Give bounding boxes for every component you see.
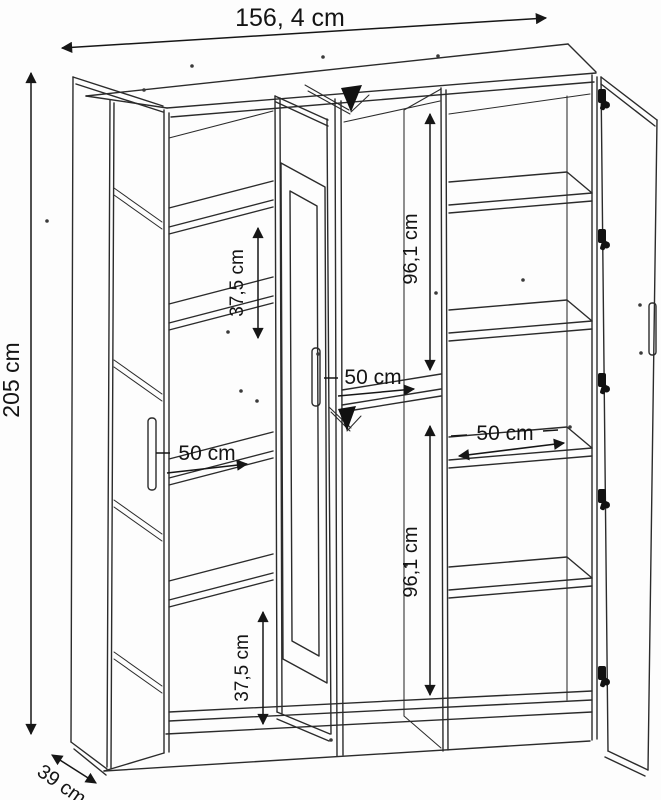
dim-shelf-gap-top-left-label: 37,5 cm xyxy=(227,249,248,317)
wardrobe-drawing xyxy=(45,44,657,776)
dim-shelf-width-left-label: 50 cm xyxy=(178,442,235,465)
hanging-rail-bracket-top xyxy=(305,85,369,114)
dim-shelf-width-right-label: 50 cm xyxy=(476,422,533,445)
left-door xyxy=(71,77,163,775)
mirror-frame-inner xyxy=(290,191,319,656)
dim-shelf-gap-bottom-left-label: 37,5 cm xyxy=(232,634,253,702)
drill-hole-dots xyxy=(45,54,643,742)
dim-depth-label: 39 cm xyxy=(33,760,90,800)
dim-width: 156, 4 cm xyxy=(62,4,546,48)
hinge-icon xyxy=(598,489,610,511)
hinge-icon xyxy=(598,373,610,395)
dim-width-label: 156, 4 cm xyxy=(235,4,345,32)
dim-shelf-width-middle-label: 50 cm xyxy=(344,366,401,389)
hinge-icon xyxy=(598,666,610,688)
hinge-icon xyxy=(598,229,610,251)
dim-height-label: 205 cm xyxy=(0,342,24,417)
middle-door-handle xyxy=(312,348,320,406)
left-column-shelves xyxy=(169,111,273,607)
dim-shelf-width-right: 50 cm xyxy=(451,422,564,456)
left-door-handle xyxy=(148,418,156,490)
diagram-page: 156, 4 cm 205 cm 39 cm 37,5 cm 37,5 cm 9… xyxy=(0,0,661,800)
dim-hanging-bottom-label: 96,1 cm xyxy=(400,526,422,597)
dim-height: 205 cm xyxy=(0,73,31,734)
mirror-frame-outer xyxy=(281,163,327,683)
right-door xyxy=(598,77,657,776)
hinge-icon xyxy=(598,89,610,111)
dim-shelf-gap-top-left: 37,5 cm xyxy=(227,228,258,338)
right-column-shelves xyxy=(449,94,592,598)
dim-hanging-top-label: 96,1 cm xyxy=(400,213,422,284)
dim-shelf-width-middle: 50 cm xyxy=(324,366,414,396)
middle-door-mirror xyxy=(275,96,331,741)
dim-depth: 39 cm xyxy=(33,755,96,800)
wardrobe-diagram: 156, 4 cm 205 cm 39 cm 37,5 cm 37,5 cm 9… xyxy=(0,0,661,800)
